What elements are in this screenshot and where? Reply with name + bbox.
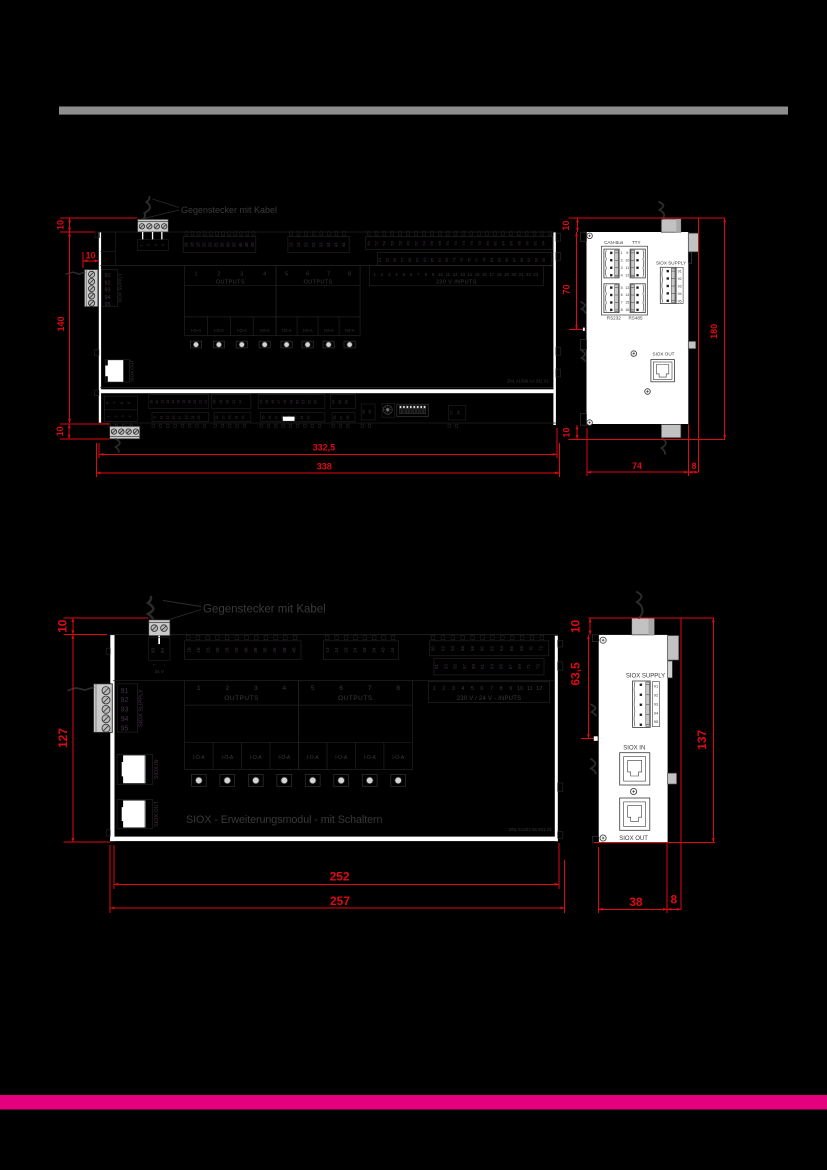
svg-text:12: 12 [536,686,542,692]
svg-text:57: 57 [400,257,405,262]
svg-text:65: 65 [429,257,434,262]
svg-text:SIOX - Erweiterungsmodul - mit: SIOX - Erweiterungsmodul - mit Schaltern [186,814,383,826]
svg-text:I-O-A: I-O-A [193,755,206,761]
svg-text:16: 16 [625,308,629,312]
svg-text:18: 18 [497,272,502,277]
svg-text:127: 127 [56,728,70,748]
svg-text:60: 60 [405,240,410,245]
svg-text:54: 54 [382,240,387,245]
svg-text:25: 25 [215,416,219,420]
svg-text:82: 82 [493,240,498,245]
svg-text:38: 38 [226,242,231,247]
svg-text:34: 34 [326,242,331,247]
svg-text:31: 31 [235,416,239,420]
svg-text:53: 53 [385,257,390,262]
svg-text:I-O-A: I-O-A [324,328,334,333]
svg-text:54: 54 [332,400,336,404]
svg-text:35: 35 [262,416,266,420]
svg-text:SIOX SUPPLY: SIOX SUPPLY [626,673,665,679]
svg-text:42: 42 [306,416,310,420]
svg-text:55: 55 [333,416,337,420]
svg-text:14: 14 [171,400,175,404]
svg-text:85: 85 [504,257,509,262]
svg-text:10: 10 [568,620,582,634]
svg-text:67: 67 [508,664,513,669]
svg-text:8: 8 [348,272,351,278]
svg-text:93: 93 [534,257,539,262]
svg-text:28: 28 [208,242,213,247]
svg-text:93: 93 [105,288,111,294]
svg-text:67: 67 [450,411,454,415]
svg-text:Gegenstecker mit Kabel: Gegenstecker mit Kabel [203,604,326,616]
svg-text:7: 7 [113,402,117,404]
svg-text:332,5: 332,5 [313,443,336,453]
svg-text:92: 92 [654,693,659,698]
svg-text:58: 58 [398,240,403,245]
svg-text:51: 51 [377,257,382,262]
svg-text:10: 10 [561,221,571,231]
svg-text:21: 21 [191,416,195,420]
svg-text:34: 34 [371,647,377,653]
svg-text:SIOX OUT: SIOX OUT [619,836,648,842]
svg-text:I-O-A: I-O-A [214,328,224,333]
svg-text:10: 10 [562,428,572,438]
svg-text:94: 94 [540,240,545,245]
svg-text:17: 17 [178,416,182,420]
svg-text:I-O-A: I-O-A [307,755,320,761]
svg-text:72: 72 [538,646,543,651]
svg-text:230 V INPUTS: 230 V INPUTS [436,280,477,286]
svg-text:44: 44 [390,647,396,653]
svg-text:95: 95 [121,725,129,732]
svg-text:33: 33 [241,416,245,420]
svg-text:I-O-A: I-O-A [303,328,313,333]
svg-text:91: 91 [105,273,111,279]
svg-text:91: 91 [121,688,129,695]
svg-text:18: 18 [196,647,202,653]
svg-text:8: 8 [621,308,623,312]
svg-text:13: 13 [166,400,170,404]
svg-text:59: 59 [346,416,350,420]
svg-text:8: 8 [396,685,400,692]
svg-text:77: 77 [474,257,479,262]
svg-text:91: 91 [678,270,682,274]
svg-text:46: 46 [272,647,278,653]
svg-text:9: 9 [626,251,628,255]
svg-text:15: 15 [205,647,211,653]
svg-text:59: 59 [471,664,476,669]
svg-text:12: 12 [160,400,164,404]
svg-text:14: 14 [625,293,629,297]
svg-text:93: 93 [654,701,659,706]
svg-text:78: 78 [477,240,482,245]
svg-text:SIOX OUT: SIOX OUT [130,360,135,382]
svg-text:93: 93 [678,285,682,289]
svg-text:52: 52 [440,646,445,651]
svg-text:14: 14 [334,647,340,653]
svg-text:1: 1 [194,272,197,278]
svg-text:20: 20 [511,272,516,277]
svg-text:92: 92 [532,240,537,245]
svg-text:8: 8 [671,893,678,907]
svg-text:4: 4 [263,272,266,278]
svg-text:I-O-A: I-O-A [282,328,292,333]
svg-text:6: 6 [339,685,343,692]
svg-text:74: 74 [461,240,466,245]
svg-text:10: 10 [85,251,95,261]
svg-text:36: 36 [268,416,272,420]
svg-text:SIOX SUPPLY: SIOX SUPPLY [139,689,145,727]
svg-text:24: 24 [204,400,208,404]
svg-text:33: 33 [318,242,323,247]
svg-text:56: 56 [338,400,342,404]
svg-text:2: 2 [225,685,229,692]
svg-text:230 V / 24 V - INPUTS: 230 V / 24 V - INPUTS [457,696,522,702]
svg-text:16: 16 [186,647,192,653]
svg-text:ZNL 51203 56 831 01: ZNL 51203 56 831 01 [509,827,553,832]
svg-text:OUTPUTS: OUTPUTS [304,280,333,286]
svg-text:4: 4 [461,686,464,692]
svg-text:35: 35 [263,647,269,653]
svg-text:55: 55 [392,257,397,262]
svg-text:95: 95 [105,302,111,308]
svg-text:RS485: RS485 [628,316,642,321]
svg-text:15: 15 [177,400,181,404]
svg-text:53: 53 [314,400,318,404]
svg-text:54: 54 [450,646,455,651]
svg-text:23: 23 [303,242,308,247]
svg-text:13: 13 [460,272,465,277]
svg-text:50: 50 [366,240,371,245]
svg-text:SIOX SUPPLY: SIOX SUPPLY [656,261,686,266]
svg-text:15: 15 [195,242,200,247]
svg-text:27: 27 [222,416,226,420]
svg-text:ZNL 41098 AA 031 01: ZNL 41098 AA 031 01 [507,378,549,383]
svg-text:63: 63 [489,664,494,669]
svg-text:30: 30 [226,400,230,404]
svg-text:70: 70 [445,240,450,245]
svg-text:I-O-A: I-O-A [335,755,348,761]
svg-text:24 V: 24 V [155,669,164,674]
svg-text:10: 10 [56,619,70,633]
svg-text:64: 64 [499,646,504,651]
svg-text:53: 53 [443,664,448,669]
svg-text:22: 22 [199,400,203,404]
svg-text:I-O-A: I-O-A [221,755,234,761]
svg-text:50: 50 [295,400,299,404]
svg-text:19: 19 [504,272,509,277]
svg-text:69: 69 [444,257,449,262]
svg-text:48: 48 [283,400,287,404]
svg-text:3: 3 [452,686,455,692]
svg-text:12: 12 [453,272,458,277]
svg-text:69: 69 [517,664,522,669]
svg-text:4: 4 [621,273,623,277]
svg-text:67: 67 [437,257,442,262]
svg-text:68: 68 [437,240,442,245]
svg-text:14: 14 [467,272,472,277]
svg-text:13: 13 [288,242,293,247]
svg-text:TTY: TTY [632,240,641,245]
svg-text:92: 92 [121,697,129,704]
svg-text:I-O-A: I-O-A [345,328,355,333]
svg-text:10: 10 [625,259,629,263]
svg-text:3: 3 [621,266,623,270]
svg-text:61: 61 [414,257,419,262]
svg-text:9: 9 [127,402,131,404]
svg-text:OUTPUTS: OUTPUTS [224,695,259,702]
svg-text:73: 73 [459,257,464,262]
svg-text:48: 48 [244,242,249,247]
svg-text:68: 68 [519,646,524,651]
svg-text:18: 18 [188,400,192,404]
svg-text:55: 55 [453,664,458,669]
svg-text:51: 51 [434,664,439,669]
svg-text:I-O-A: I-O-A [364,755,377,761]
svg-text:94: 94 [105,295,111,301]
svg-text:43: 43 [381,647,387,653]
svg-text:65: 65 [499,664,504,669]
svg-text:80: 80 [485,240,490,245]
svg-text:61: 61 [480,664,485,669]
svg-text:CAN-Bus: CAN-Bus [604,240,624,245]
svg-text:2: 2 [442,686,445,692]
svg-text:28: 28 [219,400,223,404]
svg-text:66: 66 [368,410,372,414]
svg-text:11: 11 [155,400,159,404]
svg-text:11: 11 [446,272,451,277]
svg-text:I-O-A: I-O-A [278,755,291,761]
svg-text:50: 50 [431,646,436,651]
svg-text:2: 2 [217,272,220,278]
svg-text:58: 58 [470,646,475,651]
svg-text:13: 13 [325,647,331,653]
svg-text:86: 86 [509,240,514,245]
svg-text:19: 19 [185,416,189,420]
svg-text:56: 56 [390,240,395,245]
svg-text:16: 16 [183,242,188,247]
svg-text:93: 93 [151,648,156,654]
svg-text:90: 90 [524,240,529,245]
svg-text:94: 94 [654,710,659,715]
svg-text:95: 95 [654,719,659,724]
svg-text:15: 15 [625,301,629,305]
svg-text:62: 62 [413,240,418,245]
svg-text:38: 38 [629,895,643,909]
svg-text:8: 8 [500,686,503,692]
svg-text:89: 89 [519,257,524,262]
svg-text:52: 52 [374,240,379,245]
svg-text:2: 2 [621,259,623,263]
svg-text:32: 32 [232,400,236,404]
svg-text:+: + [153,663,156,668]
svg-text:36: 36 [244,647,250,653]
svg-text:93: 93 [121,707,129,714]
svg-text:24: 24 [353,647,359,653]
svg-text:I-O-A: I-O-A [260,328,270,333]
svg-text:43: 43 [333,242,338,247]
svg-text:10: 10 [55,426,65,436]
svg-text:84: 84 [501,240,506,245]
svg-text:9: 9 [509,686,512,692]
svg-text:1: 1 [197,685,201,692]
svg-text:57: 57 [340,416,344,420]
svg-text:76: 76 [469,240,474,245]
svg-text:Gegenstecker mit Kabel: Gegenstecker mit Kabel [181,205,277,215]
svg-text:10: 10 [149,400,153,404]
svg-text:94: 94 [678,292,682,296]
svg-text:1: 1 [621,251,623,255]
svg-text:56: 56 [460,646,465,651]
svg-text:180: 180 [709,324,719,339]
svg-text:140: 140 [56,316,66,331]
svg-text:48: 48 [282,647,288,653]
svg-text:10: 10 [56,220,66,230]
svg-text:21: 21 [519,272,524,277]
svg-text:45: 45 [265,400,269,404]
svg-text:SIOX OUT: SIOX OUT [154,800,160,826]
svg-text:4: 4 [282,685,286,692]
svg-text:26: 26 [215,647,221,653]
svg-text:RS232: RS232 [607,316,621,321]
svg-text:33: 33 [362,647,368,653]
svg-text:I-O-A: I-O-A [250,755,263,761]
svg-text:I-O-A: I-O-A [191,328,201,333]
svg-text:46: 46 [271,400,275,404]
svg-text:18: 18 [189,242,194,247]
svg-text:17: 17 [489,272,494,277]
svg-text:44: 44 [341,242,346,247]
svg-text:36: 36 [220,242,225,247]
svg-text:26: 26 [213,400,217,404]
svg-text:72: 72 [453,240,458,245]
svg-text:79: 79 [482,257,487,262]
svg-text:10: 10 [517,686,523,692]
svg-text:6: 6 [621,293,623,297]
svg-text:83: 83 [496,257,501,262]
svg-text:95: 95 [541,257,546,262]
svg-text:6: 6 [306,272,309,278]
svg-text:91: 91 [654,684,659,689]
svg-text:44: 44 [259,400,263,404]
svg-text:7: 7 [490,686,493,692]
svg-text:11: 11 [625,266,629,270]
svg-text:13: 13 [166,416,170,420]
svg-text:58: 58 [345,400,349,404]
svg-text:92: 92 [105,280,111,286]
svg-text:I-O-A: I-O-A [392,755,405,761]
svg-text:15: 15 [172,416,176,420]
svg-text:13: 13 [625,286,629,290]
svg-text:73: 73 [535,664,540,669]
svg-text:91: 91 [526,257,531,262]
svg-text:26: 26 [202,242,207,247]
svg-text:28: 28 [225,647,231,653]
svg-text:9: 9 [153,417,157,419]
svg-text:5: 5 [311,685,315,692]
svg-text:41: 41 [300,416,304,420]
svg-text:252: 252 [330,869,350,883]
svg-text:46: 46 [238,242,243,247]
svg-text:38: 38 [253,647,259,653]
svg-text:59: 59 [407,257,412,262]
svg-text:10: 10 [438,272,443,277]
svg-text:60: 60 [480,646,485,651]
svg-text:5: 5 [471,686,474,692]
svg-text:24: 24 [311,242,316,247]
svg-text:3: 3 [240,272,243,278]
svg-text:45: 45 [291,647,297,653]
svg-text:47: 47 [277,400,281,404]
svg-text:81: 81 [489,257,494,262]
svg-text:70: 70 [529,646,534,651]
svg-text:25: 25 [214,242,219,247]
svg-text:11: 11 [159,416,163,420]
svg-text:71: 71 [526,664,531,669]
svg-text:69: 69 [457,411,461,415]
svg-text:I-O-A: I-O-A [237,328,247,333]
svg-text:7: 7 [327,272,330,278]
svg-text:16: 16 [182,400,186,404]
svg-text:3: 3 [254,685,258,692]
svg-text:23: 23 [533,272,538,277]
svg-text:29: 29 [228,416,232,420]
svg-text:16: 16 [482,272,487,277]
svg-text:87: 87 [511,257,516,262]
svg-text:14: 14 [296,242,301,247]
svg-text:22: 22 [526,272,531,277]
svg-text:92: 92 [678,277,682,281]
svg-text:OUTPUTS: OUTPUTS [216,280,245,286]
svg-text:SIOX OUT: SIOX OUT [653,351,675,356]
svg-text:23: 23 [343,647,349,653]
svg-text:12: 12 [625,273,629,277]
svg-text:71: 71 [452,257,457,262]
svg-text:5: 5 [285,272,288,278]
svg-text:SIOX IN: SIOX IN [154,759,160,779]
svg-text:34: 34 [239,400,243,404]
svg-text:25: 25 [234,647,240,653]
svg-text:62: 62 [489,646,494,651]
svg-text:1: 1 [107,415,111,417]
svg-text:3: 3 [121,415,125,417]
svg-text:66: 66 [429,240,434,245]
svg-text:OUTPUTS: OUTPUTS [338,695,373,702]
svg-text:63,5: 63,5 [568,662,582,686]
svg-text:65: 65 [362,410,366,414]
svg-text:137: 137 [695,729,709,749]
svg-text:63: 63 [422,257,427,262]
svg-text:8: 8 [120,402,124,404]
svg-text:52: 52 [308,400,312,404]
svg-text:75: 75 [467,257,472,262]
svg-text:257: 257 [330,894,350,908]
svg-text:35: 35 [232,242,237,247]
svg-text:4: 4 [128,415,132,417]
svg-text:37: 37 [274,416,278,420]
svg-text:SIOX SUPPLY: SIOX SUPPLY [118,273,123,302]
svg-text:49: 49 [289,400,293,404]
svg-text:74: 74 [632,461,642,471]
svg-text:2: 2 [114,415,118,417]
svg-text:88: 88 [517,240,522,245]
svg-text:64: 64 [421,240,426,245]
svg-text:SIOX IN: SIOX IN [623,746,645,752]
svg-text:45: 45 [250,242,255,247]
svg-text:23: 23 [197,416,201,420]
svg-text:57: 57 [462,664,467,669]
svg-text:66: 66 [509,646,514,651]
